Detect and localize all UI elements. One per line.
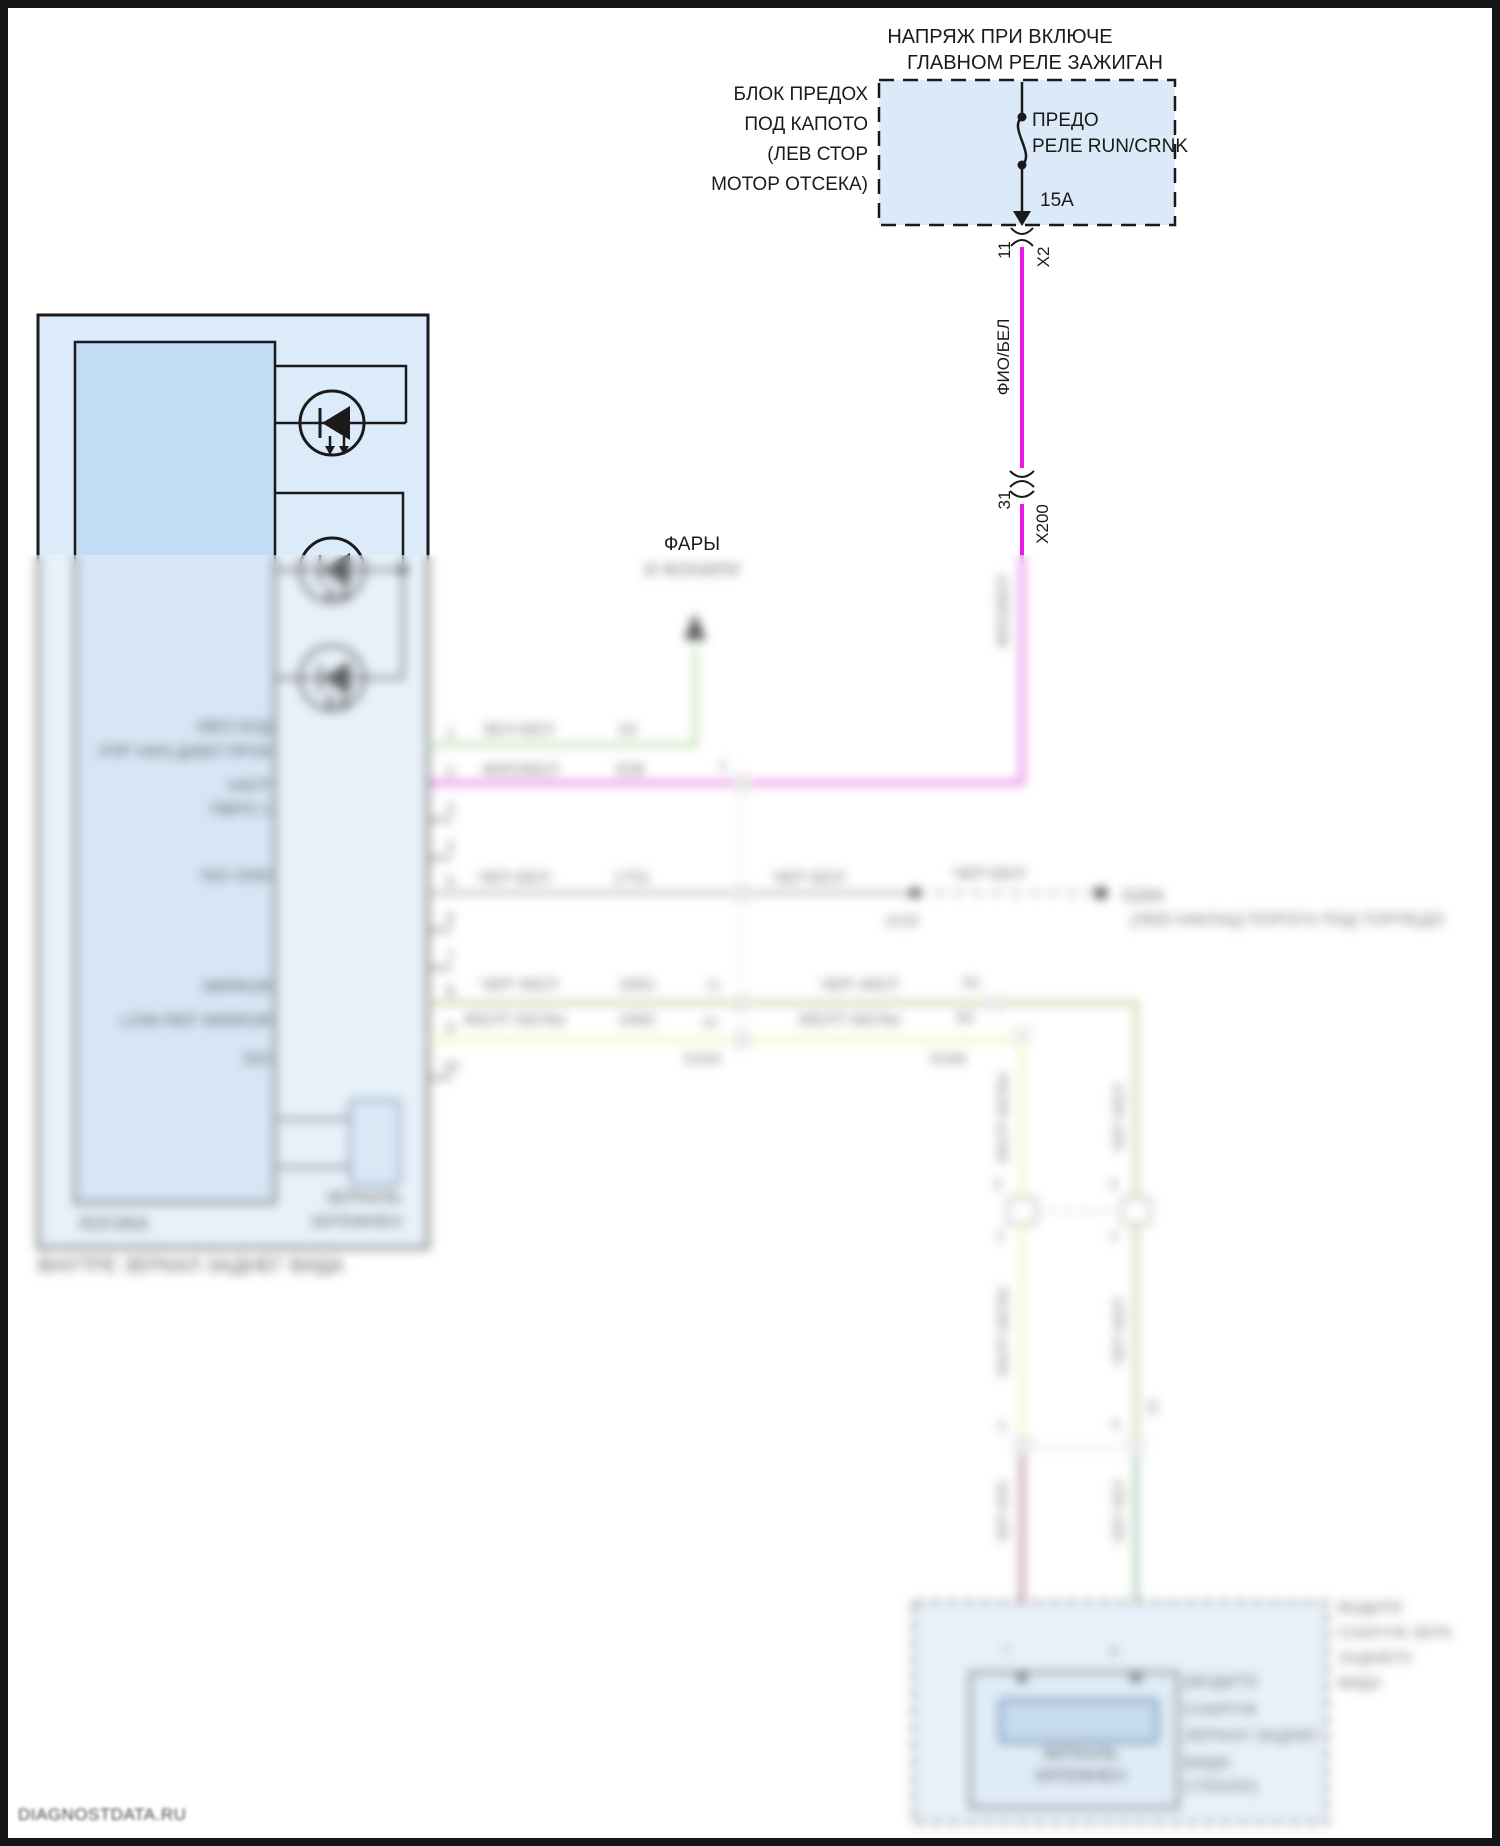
fuse-name-2: РЕЛЕ RUN/CRNK <box>1032 136 1188 158</box>
fuse-block-label-4: МОТОР ОТСЕКА) <box>640 174 868 196</box>
fuse-rating: 15A <box>1040 190 1074 212</box>
header-line2: ГЛАВНОМ РЕЛЕ ЗАЖИГАН <box>885 52 1185 75</box>
fuse-name-1: ПРЕДО <box>1032 110 1099 132</box>
fuse-block-label-3: (ЛЕВ СТОР <box>640 144 868 166</box>
wiring-diagram-page: НАПРЯЖ ПРИ ВКЛЮЧЕ ГЛАВНОМ РЕЛЕ ЗАЖИГАН Б… <box>0 0 1500 1846</box>
fuse-block-label-2: ПОД КАПОТО <box>640 114 868 136</box>
headlamps-label-1: ФАРЫ <box>637 534 747 556</box>
blur-overlay <box>8 555 1492 1837</box>
x2-name: X2 <box>1034 247 1054 268</box>
fuse-block-label-1: БЛОК ПРЕДОХ <box>640 84 868 106</box>
x2-pin: 11 <box>995 241 1015 259</box>
trunk-wire-label: ФИО/БЕЛ <box>994 319 1014 396</box>
header-line1: НАПРЯЖ ПРИ ВКЛЮЧЕ <box>850 26 1150 49</box>
x200-pin: 31 <box>995 491 1015 510</box>
watermark: DIAGNOSTDATA.RU <box>18 1805 186 1825</box>
x200-name: X200 <box>1033 504 1053 544</box>
